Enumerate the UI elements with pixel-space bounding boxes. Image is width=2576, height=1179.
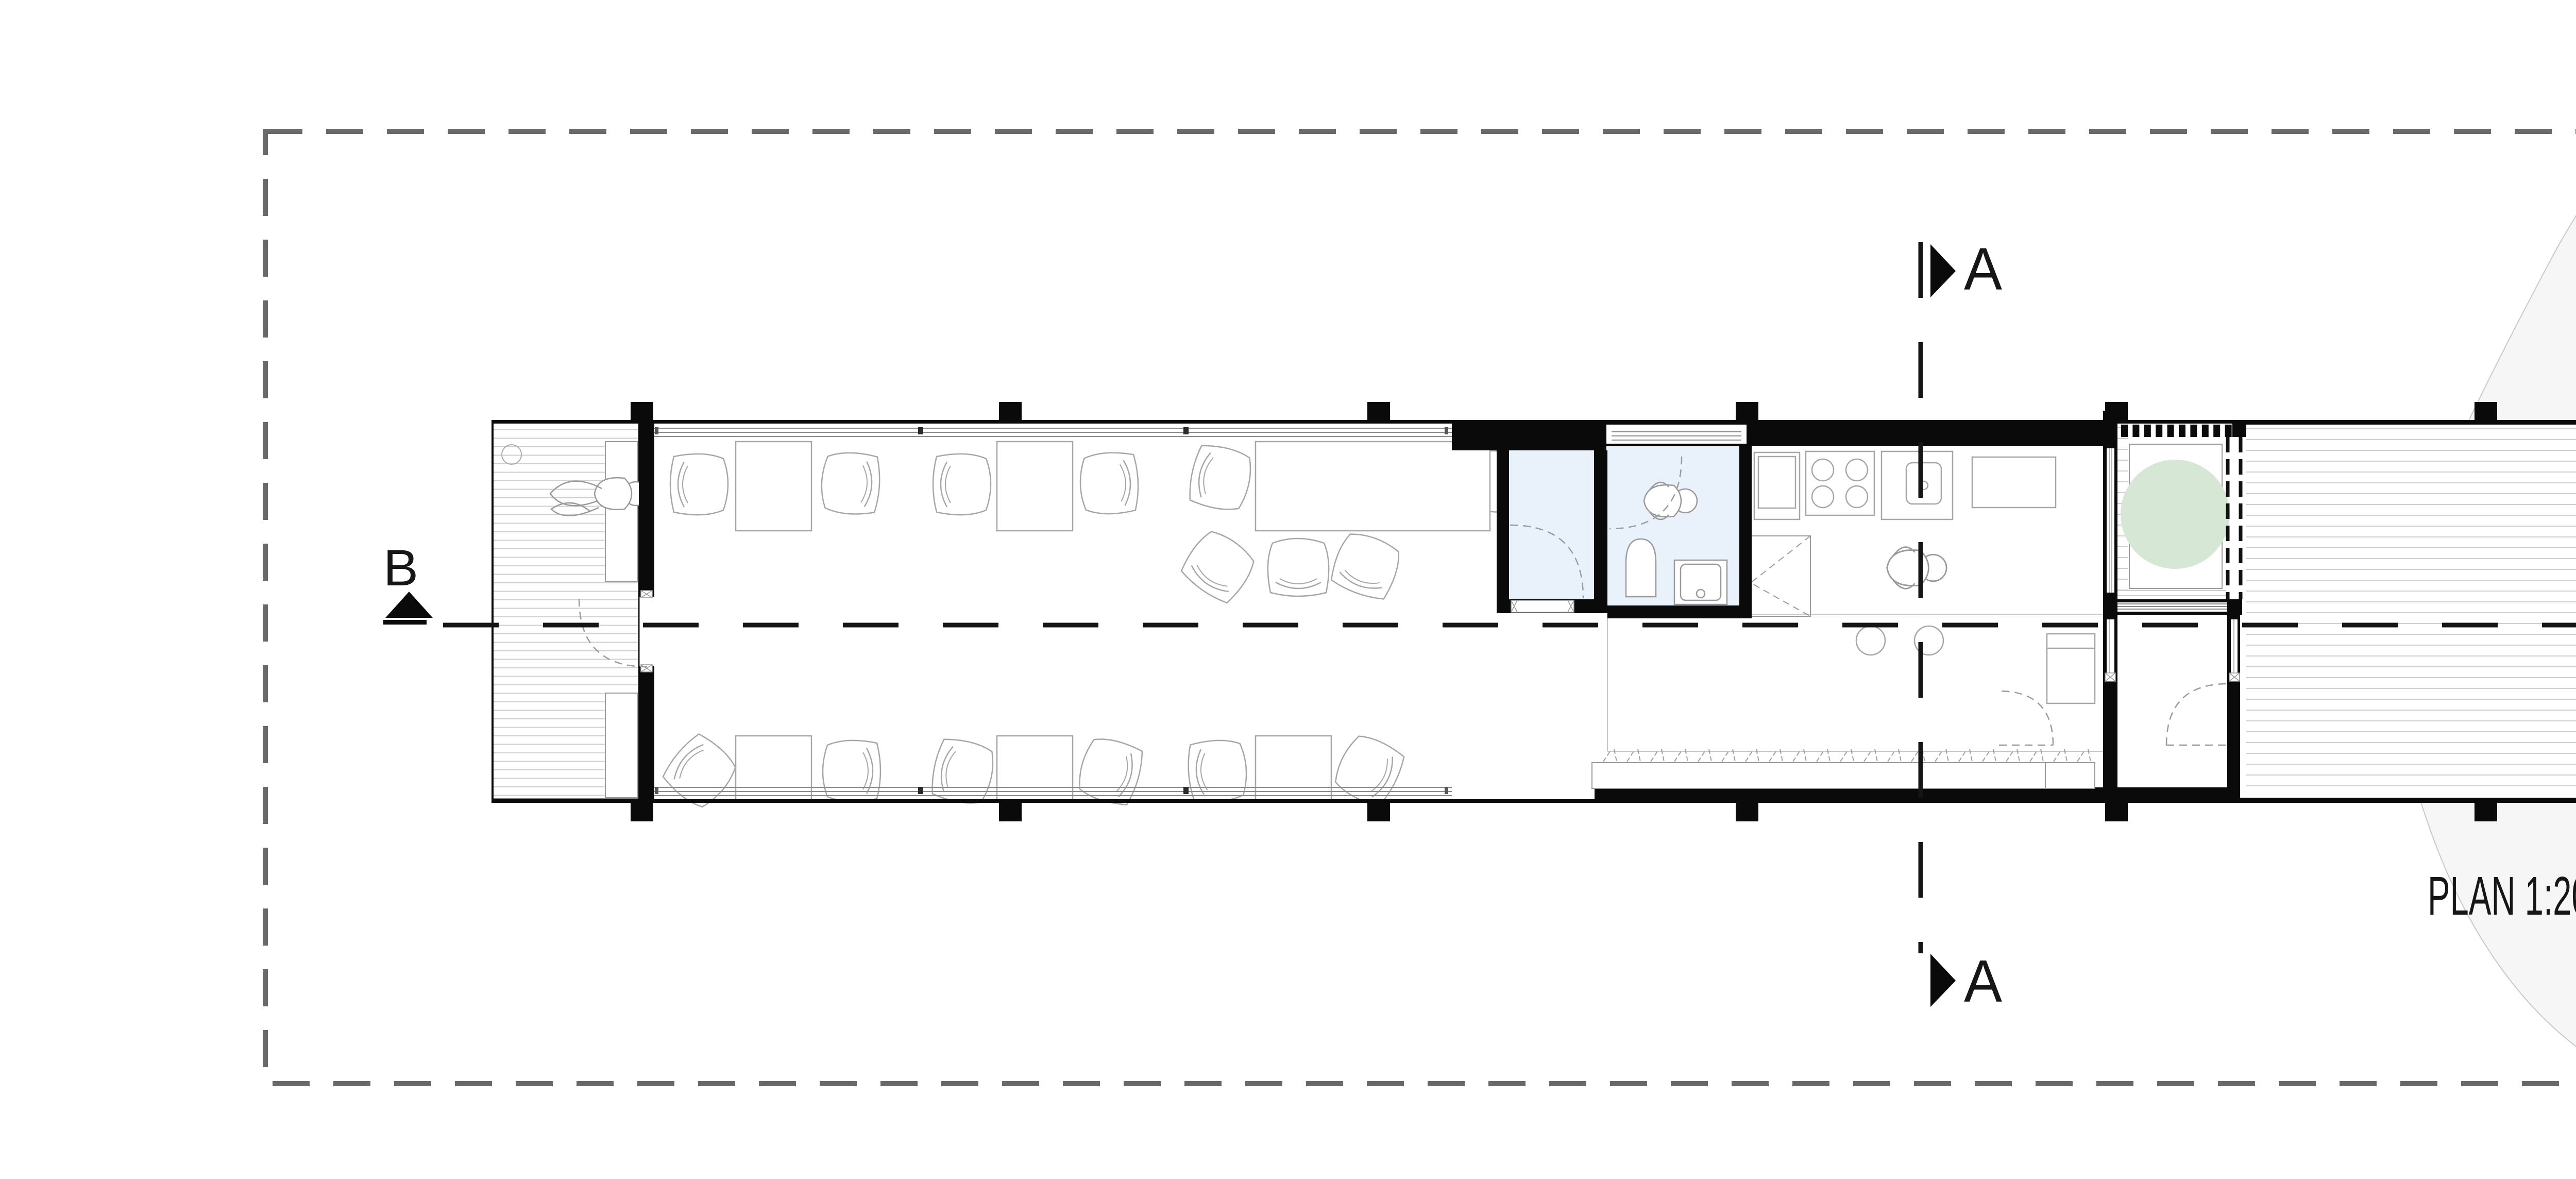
louver-bar: [2202, 425, 2209, 437]
column: [999, 802, 1022, 821]
burner-icon: [1812, 486, 1834, 508]
louver-bar: [2213, 425, 2220, 437]
column: [999, 402, 1022, 422]
window-jamb: [655, 787, 658, 794]
window-jamb: [1445, 787, 1448, 794]
desk: [997, 442, 1073, 531]
window-jamb: [1445, 427, 1448, 434]
wc-bench: [1511, 600, 1574, 612]
burner-icon: [1812, 459, 1834, 481]
counter-appliance: [1972, 457, 2056, 508]
section-label-a-bottom: A: [1964, 948, 2003, 1015]
louver-bar: [2156, 425, 2162, 437]
wc-core: [1509, 446, 1739, 605]
column: [2105, 402, 2128, 422]
chair-seat: [670, 454, 728, 515]
chair: [670, 454, 728, 515]
louver-bar: [2144, 425, 2151, 437]
louver-bar: [2132, 425, 2139, 437]
meeting-table: [1256, 442, 1490, 531]
chair-seat: [823, 740, 880, 801]
column: [1367, 802, 1390, 821]
chair: [1268, 538, 1329, 596]
chair: [823, 740, 880, 801]
courtyard-tree: [2121, 460, 2230, 569]
louver-bar: [2121, 425, 2128, 437]
island-cabinet: [2047, 634, 2095, 703]
chair: [933, 454, 991, 515]
plan-drawing: A A B B N PLAN 1:200: [0, 0, 2576, 1179]
column: [2475, 802, 2497, 821]
chair-seat: [1268, 538, 1329, 596]
section-label-b-left: B: [383, 539, 418, 596]
building: [492, 402, 2576, 821]
column: [1736, 802, 1758, 821]
column: [631, 402, 653, 422]
burner-icon: [1846, 459, 1868, 481]
column: [2105, 802, 2128, 821]
section-arrow-icon: [1930, 954, 1956, 1007]
chair: [1079, 452, 1139, 515]
shower-icon: [1674, 560, 1727, 604]
mullion-tick: [918, 427, 923, 434]
chair: [1187, 738, 1248, 803]
chair-seat: [933, 454, 991, 515]
louver-bar: [2190, 425, 2197, 437]
column: [2475, 402, 2497, 422]
chair: [820, 451, 881, 515]
column: [1736, 402, 1758, 422]
mullion-tick: [1183, 787, 1189, 794]
section-arrow-icon: [1930, 244, 1956, 297]
louver-bar: [2167, 425, 2174, 437]
column: [1367, 402, 1390, 422]
louver-bar: [2225, 425, 2232, 437]
terrace-bench: [605, 693, 638, 798]
window-jamb: [655, 427, 658, 434]
louver-bar: [2179, 425, 2185, 437]
toilet-icon: [1626, 539, 1656, 597]
section-label-a-top: A: [1964, 235, 2003, 302]
mullion-tick: [918, 787, 923, 794]
terrace-bench: [605, 442, 638, 581]
column: [631, 802, 653, 821]
tall-unit-inner: [1758, 457, 1795, 508]
desk: [736, 442, 811, 531]
plan-scale-label: PLAN 1:200: [2428, 866, 2576, 927]
section-marker-underline: [383, 620, 427, 625]
mullion-tick: [1183, 427, 1189, 434]
floor-plan-sheet: A A B B N PLAN 1:200: [0, 0, 2576, 1179]
burner-icon: [1846, 486, 1868, 508]
